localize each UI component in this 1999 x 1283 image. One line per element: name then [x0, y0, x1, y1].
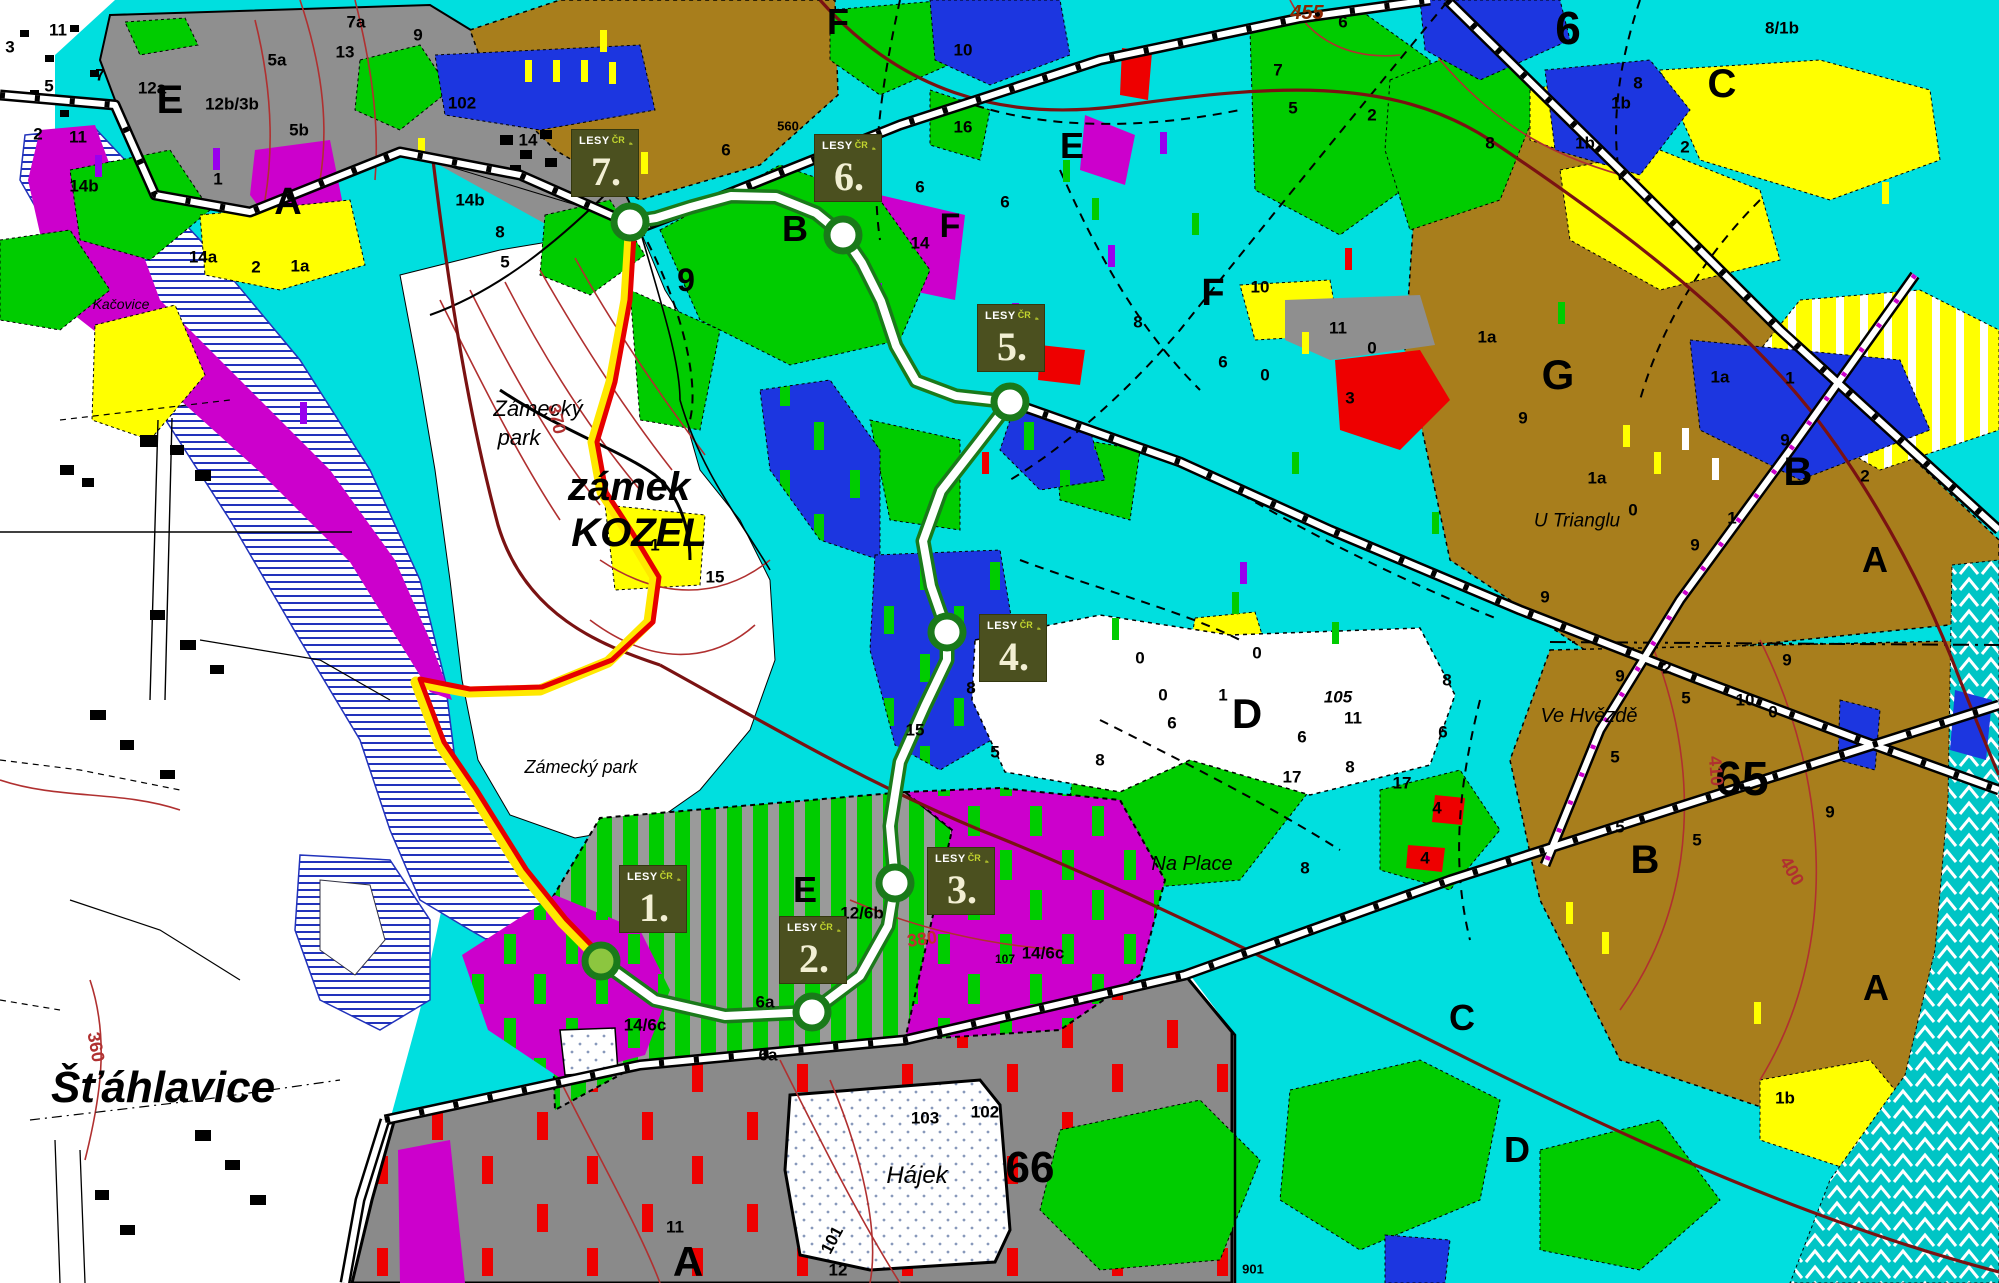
waypoint-circle-3[interactable] [879, 867, 911, 899]
logo-text-lesy: LESY [822, 140, 853, 152]
trail-stop-marker-3[interactable]: LESYČR3. [928, 848, 994, 914]
stop-number: 3. [935, 869, 989, 911]
logo-text-cr: ČR [612, 135, 625, 145]
stop-number: 6. [822, 156, 876, 198]
trail-stop-marker-1[interactable]: LESYČR1. [620, 866, 686, 932]
tree-icon [628, 136, 633, 150]
logo-text-cr: ČR [1018, 310, 1031, 320]
pond [1950, 690, 1992, 760]
waypoint-circle-7[interactable] [614, 206, 646, 238]
hajek-meadow [785, 1080, 1010, 1270]
trail-stop-marker-5[interactable]: LESYČR5. [978, 305, 1044, 371]
tree-icon [1034, 311, 1039, 325]
tree-icon [676, 872, 681, 886]
waypoint-circle-1[interactable] [585, 945, 617, 977]
stop-number: 5. [985, 326, 1039, 368]
logo-text-lesy: LESY [627, 871, 658, 883]
tree-icon [1036, 621, 1041, 635]
trail-stop-marker-2[interactable]: LESYČR2. [780, 917, 846, 983]
logo-text-lesy: LESY [935, 853, 966, 865]
waypoint-circle-6[interactable] [827, 219, 859, 251]
stop-number: 1. [627, 887, 681, 929]
trail-stop-marker-4[interactable]: LESYČR4. [980, 615, 1046, 681]
stop-number: 7. [579, 151, 633, 193]
logo-text-lesy: LESY [987, 620, 1018, 632]
waypoint-circle-5[interactable] [994, 386, 1026, 418]
logo-text-cr: ČR [820, 922, 833, 932]
logo-text-lesy: LESY [985, 310, 1016, 322]
logo-text-cr: ČR [1020, 620, 1033, 630]
tree-icon [984, 854, 989, 868]
trail-stop-marker-6[interactable]: LESYČR6. [815, 135, 881, 201]
stop-number: 2. [787, 938, 841, 980]
forestry-trail-map[interactable]: ŠťáhlavicezámekKOZELZámeckýparkZámecký p… [0, 0, 1999, 1283]
stop-number: 4. [987, 636, 1041, 678]
waypoint-circle-4[interactable] [931, 616, 963, 648]
logo-text-cr: ČR [660, 871, 673, 881]
tree-icon [836, 923, 841, 937]
logo-text-cr: ČR [855, 140, 868, 150]
logo-text-cr: ČR [968, 853, 981, 863]
waypoint-circle-2[interactable] [796, 996, 828, 1028]
trail-stop-marker-7[interactable]: LESYČR7. [572, 130, 638, 196]
logo-text-lesy: LESY [787, 922, 818, 934]
tree-icon [871, 141, 876, 155]
logo-text-lesy: LESY [579, 135, 610, 147]
